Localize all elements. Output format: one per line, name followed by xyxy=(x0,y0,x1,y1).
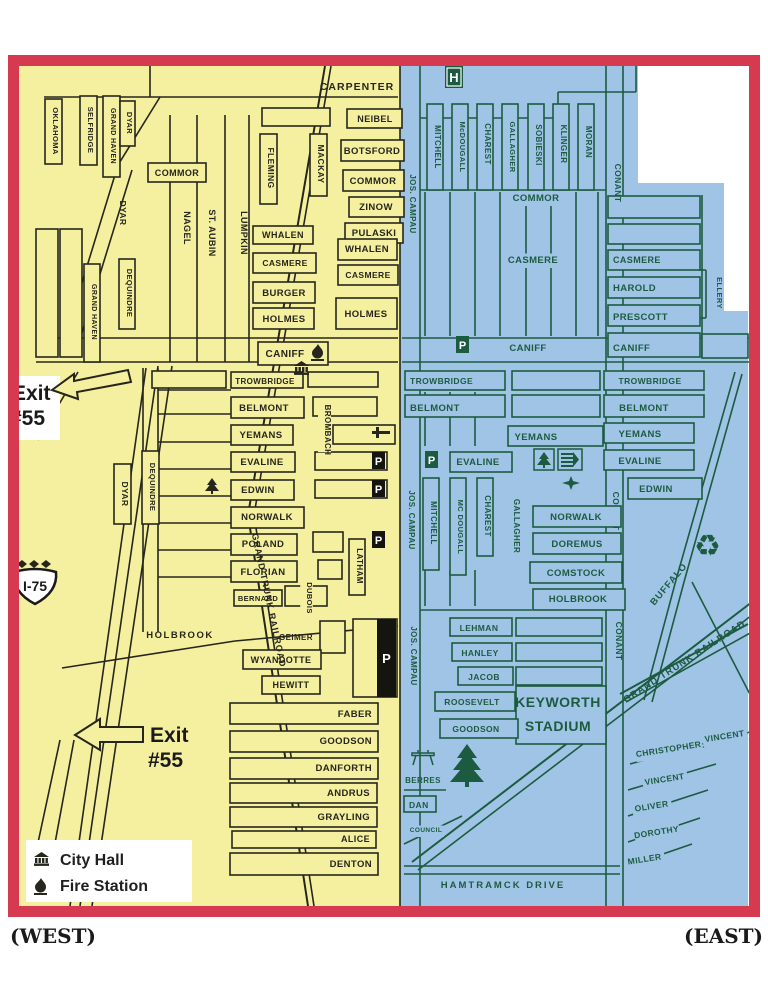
street-label: MORAN xyxy=(584,126,593,158)
street-label: GOODSON xyxy=(452,724,499,734)
block-outline xyxy=(333,425,395,444)
street-label: BELMONT xyxy=(410,403,460,414)
street-label: DAN xyxy=(409,800,429,810)
legend: City HallFire Station xyxy=(26,840,192,902)
street-label: ZINOW xyxy=(359,202,393,213)
street-label: LUMPKIN xyxy=(239,211,249,255)
street-label: HOLBROOK xyxy=(146,630,213,641)
street-label: HANLEY xyxy=(461,648,498,658)
street-label: CANIFF xyxy=(265,349,304,360)
street-label: YEMANS xyxy=(239,430,282,441)
street-label: LATHAM xyxy=(355,548,364,584)
street-label: MITCHELL xyxy=(433,125,442,169)
parking-icon: P xyxy=(456,336,469,353)
street-label: TROWBRIDGE xyxy=(410,376,473,386)
legend-label-fire: Fire Station xyxy=(60,878,148,895)
street-label: LEHMAN xyxy=(460,623,499,633)
street-label: COMMOR xyxy=(513,193,560,204)
street-label: CHAREST xyxy=(483,495,492,536)
street-label: BROMBACH xyxy=(323,405,332,456)
street-label: DANFORTH xyxy=(316,763,373,774)
street-label: NORWALK xyxy=(550,512,602,523)
map-notch xyxy=(638,66,748,183)
block-outline xyxy=(308,372,378,387)
street-label: TROWBRIDGE xyxy=(235,377,295,386)
street-label: YEMANS xyxy=(618,429,661,440)
street-label: EVALINE xyxy=(618,456,661,467)
street-label: COMMOR xyxy=(350,176,397,187)
parking-icon: P xyxy=(425,451,438,468)
street-label: WHALEN xyxy=(262,230,304,240)
street-label: HAMTRAMCK DRIVE xyxy=(441,880,565,891)
street-label: SELFRIDGE xyxy=(86,107,95,154)
street-label: MC DOUGALL xyxy=(456,500,465,555)
svg-text:P: P xyxy=(375,456,382,468)
street-label: MITCHELL xyxy=(429,501,438,545)
street-label: McDOUGALL xyxy=(458,121,467,172)
street-label: COMSTOCK xyxy=(547,568,605,579)
street-label: FLEMING xyxy=(266,147,276,188)
street-label: GEIMER xyxy=(279,633,313,642)
street-label: CHAREST xyxy=(483,123,492,164)
street-label: TROWBRIDGE xyxy=(618,376,681,386)
svg-text:♻: ♻ xyxy=(694,529,721,564)
block-outline xyxy=(318,560,342,579)
map-canvas: CARPENTERNEIBELBOTSFORDCOMMORZINOWPULASK… xyxy=(0,0,768,994)
street-label: GRAND HAVEN xyxy=(90,284,97,340)
street-label: GRAND HAVEN xyxy=(109,108,116,164)
block-outline xyxy=(152,371,226,388)
street-label: HAROLD xyxy=(613,283,656,294)
street-label: CASMERE xyxy=(262,258,307,268)
street-label: ST. AUBIN xyxy=(207,209,217,256)
block-outline xyxy=(608,224,700,244)
block-outline xyxy=(516,618,602,636)
street-label: NAGEL xyxy=(182,211,192,245)
svg-text:P: P xyxy=(382,651,391,666)
parking-icon: P xyxy=(372,531,385,548)
block-outline xyxy=(516,643,602,661)
street-label: CASMERE xyxy=(508,255,558,266)
block-outline xyxy=(320,621,345,653)
street-label: COMMOR xyxy=(155,168,199,178)
west-label: (WEST) xyxy=(10,924,96,948)
east-label: (EAST) xyxy=(684,924,763,948)
street-label: CARPENTER xyxy=(320,81,394,93)
street-label: BERRES xyxy=(405,776,441,785)
street-label: DENTON xyxy=(330,859,372,870)
street-label: EVALINE xyxy=(240,457,283,468)
parking-tall-icon: P xyxy=(377,619,396,697)
street-label: WHALEN xyxy=(345,244,389,255)
map-notch xyxy=(724,183,748,311)
street-label: CANIFF xyxy=(509,343,546,354)
block-outline xyxy=(516,667,602,685)
street-label: ELLERY xyxy=(715,277,724,309)
street-label: BELMONT xyxy=(239,403,289,414)
street-label: JOS. CAMPAU xyxy=(407,490,416,549)
street-label: GALLAGHER xyxy=(508,121,517,172)
street-label: SOBIESKI xyxy=(534,124,543,165)
street-label: HEWITT xyxy=(273,680,310,690)
street-label: DYAR xyxy=(118,201,128,226)
street-label: PULASKI xyxy=(352,228,397,239)
street-label: EVALINE xyxy=(456,457,499,468)
block-outline xyxy=(512,395,600,417)
street-label: MACKAY xyxy=(316,145,326,184)
street-label: DUBOIS xyxy=(305,582,314,614)
street-label: ROOSEVELT xyxy=(444,697,500,707)
hospital-icon: H xyxy=(445,66,463,88)
street-label: EDWIN xyxy=(241,485,275,496)
street-label: OKLAHOMA xyxy=(51,107,60,155)
recycle-icon: ♻ xyxy=(694,529,721,564)
block-outline xyxy=(512,371,600,390)
street-label: DEQUINDRE xyxy=(148,463,157,512)
street-label: CONANT xyxy=(613,164,623,203)
street-label: NORWALK xyxy=(241,512,293,523)
map-page: CARPENTERNEIBELBOTSFORDCOMMORZINOWPULASK… xyxy=(0,0,768,994)
street-label: STADIUM xyxy=(525,718,591,734)
street-label: PRESCOTT xyxy=(613,312,668,323)
street-label: ALICE xyxy=(341,834,370,844)
exit-number: #55 xyxy=(148,749,183,772)
street-label: GRAYLING xyxy=(318,812,370,823)
street-label: CONANT xyxy=(614,622,624,661)
street-label: HOLBROOK xyxy=(549,594,608,605)
street-label: GALLAGHER xyxy=(512,499,521,553)
block-outline xyxy=(313,532,343,552)
parking-icon: P xyxy=(372,480,385,497)
street-label: BELMONT xyxy=(619,403,669,414)
svg-text:P: P xyxy=(375,535,382,547)
parking-icon: P xyxy=(372,452,385,469)
svg-text:P: P xyxy=(428,455,435,467)
block-outline xyxy=(702,334,748,358)
street-label: CASMERE xyxy=(345,270,390,280)
street-label: DEQUINDRE xyxy=(125,269,134,318)
street-label: BURGER xyxy=(262,288,306,299)
street-label: COUNCIL xyxy=(410,827,442,834)
street-label: DOREMUS xyxy=(551,539,602,550)
street-label: HOLMES xyxy=(344,309,387,320)
svg-text:P: P xyxy=(375,484,382,496)
block-outline xyxy=(36,229,58,357)
street-label: HOLMES xyxy=(262,314,305,325)
legend-label-cityhall: City Hall xyxy=(60,852,124,869)
block-outline xyxy=(262,108,330,126)
street-label: JACOB xyxy=(468,672,500,682)
street-label: NEIBEL xyxy=(357,114,393,124)
street-label: ANDRUS xyxy=(327,788,370,799)
shield-label: I-75 xyxy=(23,578,47,594)
street-label: EDWIN xyxy=(639,484,673,495)
block-outline xyxy=(60,229,82,357)
svg-text:P: P xyxy=(459,340,466,352)
street-label: YEMANS xyxy=(514,432,557,443)
exit-label: Exit xyxy=(150,724,189,747)
street-label: CASMERE xyxy=(613,255,661,265)
street-label: DYAR xyxy=(120,482,130,507)
street-label: KLINGER xyxy=(559,125,568,164)
street-label: CANIFF xyxy=(613,343,650,354)
street-label: FABER xyxy=(338,709,372,720)
svg-text:H: H xyxy=(449,70,458,85)
street-label: KEYWORTH xyxy=(515,694,601,710)
street-label: DYAR xyxy=(125,112,134,134)
street-label: JOS. CAMPAU xyxy=(408,174,417,233)
street-label: BOTSFORD xyxy=(344,146,401,157)
street-label: JOS. CAMPAU xyxy=(409,626,418,685)
street-label: GOODSON xyxy=(320,736,372,747)
